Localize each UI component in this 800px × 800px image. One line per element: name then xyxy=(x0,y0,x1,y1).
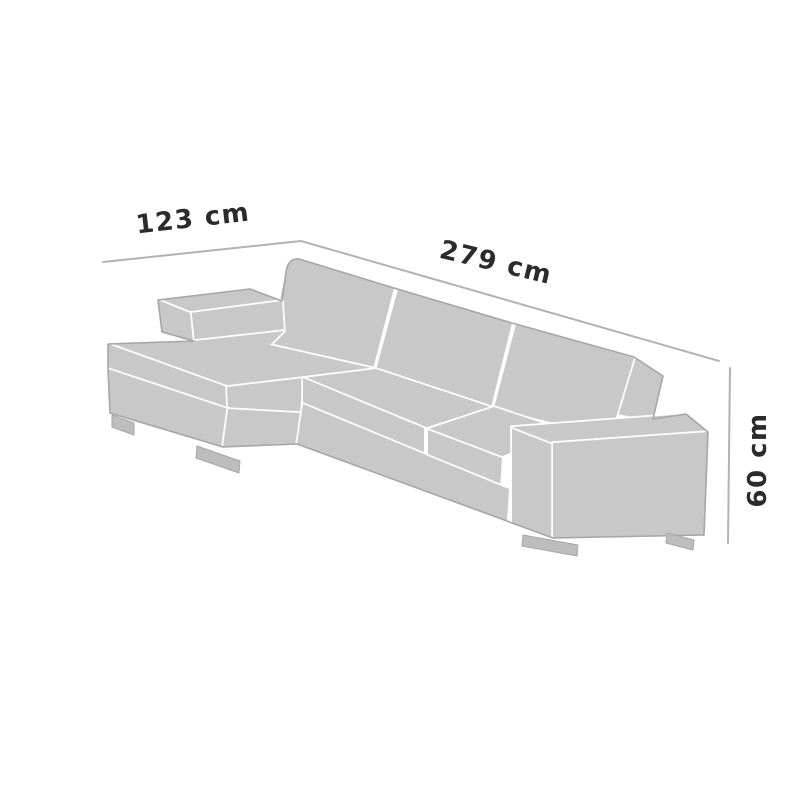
foot-chaise-front xyxy=(196,446,240,473)
sofa-illustration xyxy=(0,0,800,800)
right-armrest xyxy=(512,414,708,538)
dimension-line-height xyxy=(728,368,730,543)
diagram-canvas: 123 cm 279 cm 60 cm xyxy=(0,0,800,800)
dimension-label-height: 60 cm xyxy=(743,412,773,507)
